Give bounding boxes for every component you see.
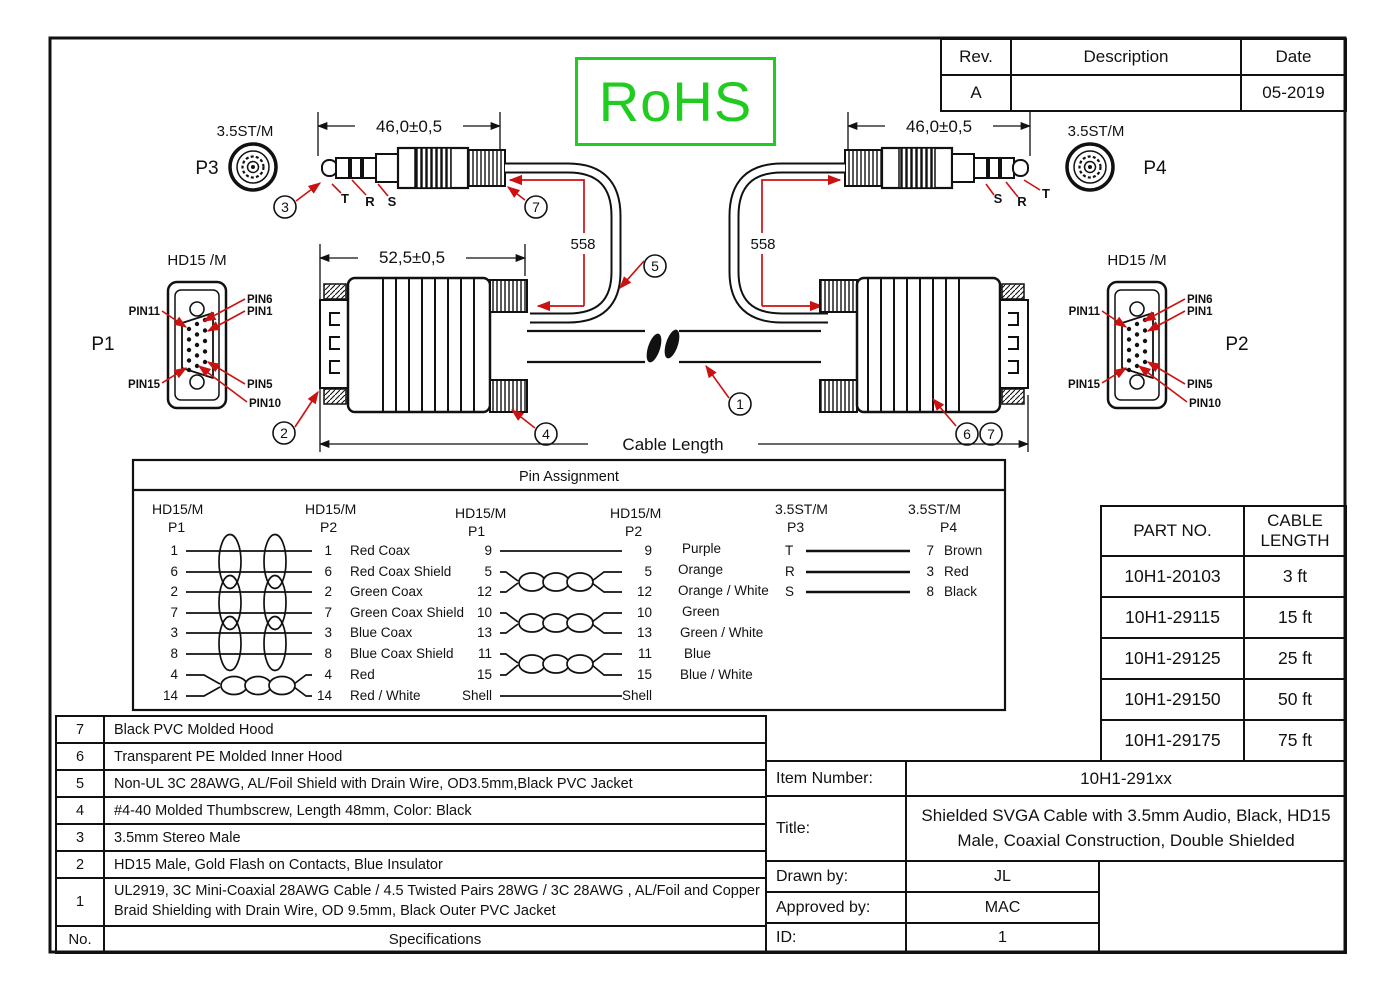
svg-text:Blue: Blue xyxy=(684,646,711,661)
callout-1: 1 xyxy=(736,396,744,412)
callout-7-top: 7 xyxy=(532,199,540,215)
pa-header: P2 xyxy=(625,523,642,539)
svg-text:5: 5 xyxy=(644,564,652,579)
title-value: Shielded SVGA Cable with 3.5mm Audio, Bl… xyxy=(906,796,1346,861)
svg-text:R: R xyxy=(785,564,795,579)
plug-left-pin-r: R xyxy=(365,194,375,209)
pa-header: P4 xyxy=(940,519,957,535)
svg-text:9: 9 xyxy=(644,543,652,558)
spec-text: Black PVC Molded Hood xyxy=(104,716,766,743)
svg-text:S: S xyxy=(785,584,794,599)
svg-text:13: 13 xyxy=(637,625,652,640)
svg-text:2: 2 xyxy=(170,584,178,599)
svg-text:7: 7 xyxy=(926,543,934,558)
length-cell: 75 ft xyxy=(1244,720,1346,761)
svg-text:5: 5 xyxy=(484,564,492,579)
p2-pin10-label: PIN10 xyxy=(1189,398,1221,410)
svg-text:Orange / White: Orange / White xyxy=(678,583,769,598)
left-vga-connector: 52,5±0,5 2 4 xyxy=(273,244,557,452)
p1-name-label: P1 xyxy=(91,334,114,355)
rev-header: Rev. xyxy=(941,39,1011,75)
svg-text:Green / White: Green / White xyxy=(680,625,763,640)
spec-no: 6 xyxy=(56,743,104,770)
svg-text:Red: Red xyxy=(944,564,969,579)
dim-558-left: 558 xyxy=(570,236,595,253)
approved-by-value: MAC xyxy=(906,892,1099,923)
svg-text:15: 15 xyxy=(637,667,652,682)
p2-pin6-label: PIN6 xyxy=(1187,294,1213,306)
dim-vga: 52,5±0,5 xyxy=(379,248,445,267)
svg-text:Red Coax: Red Coax xyxy=(350,543,410,558)
p2-type-label: HD15 /M xyxy=(1107,252,1166,269)
drawn-by-value: JL xyxy=(906,861,1099,892)
svg-text:8: 8 xyxy=(324,646,332,661)
pa-header: P3 xyxy=(787,519,804,535)
p2-name-label: P2 xyxy=(1225,334,1248,355)
callout-7-bottom: 7 xyxy=(987,426,995,442)
svg-text:Blue / White: Blue / White xyxy=(680,667,753,682)
pa-header: P1 xyxy=(468,523,485,539)
part-no-cell: 10H1-20103 xyxy=(1101,556,1244,597)
svg-text:Red Coax Shield: Red Coax Shield xyxy=(350,564,451,579)
length-cell: 3 ft xyxy=(1244,556,1346,597)
approved-by-label: Approved by: xyxy=(766,892,906,923)
length-cell: 15 ft xyxy=(1244,597,1346,638)
rohs-badge: RoHS xyxy=(575,57,776,146)
spec-text: Non-UL 3C 28AWG, AL/Foil Shield with Dra… xyxy=(104,770,766,797)
title-block: Item Number: 10H1-291xx Title: Shielded … xyxy=(765,760,1347,954)
company-logo: 888-212-8295 CableWholesale .com xyxy=(1099,861,1346,953)
dim-right-plug: 46,0±0,5 xyxy=(906,117,972,136)
svg-text:8: 8 xyxy=(170,646,178,661)
length-cell: 25 ft xyxy=(1244,638,1346,679)
spec-sheet-page: { "colors": {"red": "#cc1111", "green": … xyxy=(0,0,1400,990)
p3-type-label: 3.5ST/M xyxy=(217,123,274,140)
svg-text:Purple: Purple xyxy=(682,541,721,556)
plug-right-pin-t: T xyxy=(1042,186,1050,201)
p3-jack-face: 3.5ST/M P3 xyxy=(195,123,276,190)
cable-length-label: Cable Length xyxy=(622,435,723,454)
svg-text:3: 3 xyxy=(926,564,934,579)
svg-text:11: 11 xyxy=(638,646,652,661)
svg-text:4: 4 xyxy=(324,667,332,682)
svg-text:Green: Green xyxy=(682,604,720,619)
part-no-header: PART NO. xyxy=(1101,506,1244,556)
svg-text:15: 15 xyxy=(477,667,492,682)
p1-pin15-label: PIN15 xyxy=(128,379,161,391)
pa-header: 3.5ST/M xyxy=(775,501,828,517)
svg-text:Green Coax: Green Coax xyxy=(350,584,423,599)
svg-text:Shell: Shell xyxy=(622,688,652,703)
spec-no: 3 xyxy=(56,824,104,851)
id-label: ID: xyxy=(766,923,906,953)
p4-type-label: 3.5ST/M xyxy=(1068,123,1125,140)
svg-text:2: 2 xyxy=(324,584,332,599)
revision-table: Rev. Description Date A 05-2019 xyxy=(940,38,1347,112)
dim-558-right: 558 xyxy=(750,236,775,253)
cable-length-header: CABLE LENGTH xyxy=(1244,506,1346,556)
spec-no: 7 xyxy=(56,716,104,743)
svg-text:3: 3 xyxy=(170,625,178,640)
svg-text:3: 3 xyxy=(324,625,332,640)
svg-text:14: 14 xyxy=(317,688,333,703)
pa-header: 3.5ST/M xyxy=(908,501,961,517)
p1-type-label: HD15 /M xyxy=(167,252,226,269)
pin-assignment-title: Pin Assignment xyxy=(519,469,619,485)
svg-text:8: 8 xyxy=(926,584,934,599)
svg-text:1: 1 xyxy=(170,543,178,558)
svg-text:Orange: Orange xyxy=(678,562,723,577)
rev-value: A xyxy=(941,75,1011,111)
spec-footer-label: Specifications xyxy=(104,926,766,953)
item-number-value: 10H1-291xx xyxy=(906,761,1346,796)
svg-text:Black: Black xyxy=(944,584,977,599)
part-no-cell: 10H1-29150 xyxy=(1101,679,1244,720)
audio-cable-loops: 558 558 5 xyxy=(505,168,845,318)
spec-no: 2 xyxy=(56,851,104,878)
part-no-cell: 10H1-29175 xyxy=(1101,720,1244,761)
hd15-face-p2: HD15 /M P2 PIN11 PIN15 PIN6 PIN1 PIN5 PI… xyxy=(1068,252,1249,410)
svg-text:Blue Coax Shield: Blue Coax Shield xyxy=(350,646,454,661)
svg-text:Green Coax Shield: Green Coax Shield xyxy=(350,605,464,620)
right-vga-connector: 6 7 xyxy=(820,278,1028,445)
p4-jack-face: 3.5ST/M P4 xyxy=(1067,123,1167,190)
svg-text:12: 12 xyxy=(477,584,492,599)
spec-text: HD15 Male, Gold Flash on Contacts, Blue … xyxy=(104,851,766,878)
part-no-cell: 10H1-29115 xyxy=(1101,597,1244,638)
svg-text:14: 14 xyxy=(163,688,179,703)
hd15-face-p1: HD15 /M P1 PIN11 PIN15 PIN6 PIN1 PIN5 PI… xyxy=(91,252,281,410)
plug-right-pin-r: R xyxy=(1017,194,1027,209)
svg-text:13: 13 xyxy=(477,625,492,640)
date-header: Date xyxy=(1241,39,1346,75)
spec-no: 4 xyxy=(56,797,104,824)
svg-text:12: 12 xyxy=(637,584,652,599)
part-number-table: PART NO. CABLE LENGTH 10H1-20103 3 ft 10… xyxy=(1100,505,1347,762)
spec-no: 1 xyxy=(56,878,104,926)
title-label: Title: xyxy=(766,796,906,861)
callout-2: 2 xyxy=(280,425,288,441)
pin-assignment-table: Pin Assignment HD15/M P1 HD15/M P2 HD15/… xyxy=(133,460,1005,710)
pa-header: P2 xyxy=(320,519,337,535)
p2-pin11-label: PIN11 xyxy=(1069,306,1101,318)
svg-text:Red / White: Red / White xyxy=(350,688,421,703)
svg-text:T: T xyxy=(785,543,793,558)
p1-pin11-label: PIN11 xyxy=(129,306,161,318)
p2-pin1-label: PIN1 xyxy=(1187,306,1213,318)
description-value xyxy=(1011,75,1241,111)
part-no-cell: 10H1-29125 xyxy=(1101,638,1244,679)
spec-text: 3.5mm Stereo Male xyxy=(104,824,766,851)
plug-right-pin-s: S xyxy=(994,191,1003,206)
svg-text:Shell: Shell xyxy=(462,688,492,703)
spec-text: #4-40 Molded Thumbscrew, Length 48mm, Co… xyxy=(104,797,766,824)
svg-text:6: 6 xyxy=(324,564,332,579)
pa-header: P1 xyxy=(168,519,185,535)
plug-left-pin-t: T xyxy=(341,191,349,206)
rohs-label: RoHS xyxy=(599,69,752,134)
dim-left-plug: 46,0±0,5 xyxy=(376,117,442,136)
svg-text:6: 6 xyxy=(170,564,178,579)
svg-text:1: 1 xyxy=(324,543,332,558)
svg-text:7: 7 xyxy=(324,605,332,620)
pa-header: HD15/M xyxy=(305,501,356,517)
p1-pin5-label: PIN5 xyxy=(247,379,273,391)
p2-pin15-label: PIN15 xyxy=(1068,379,1101,391)
right-audio-plug: 46,0±0,5 S R T xyxy=(845,112,1050,209)
svg-text:10: 10 xyxy=(477,605,492,620)
p3-name-label: P3 xyxy=(195,158,218,179)
p2-pin5-label: PIN5 xyxy=(1187,379,1213,391)
svg-text:Brown: Brown xyxy=(944,543,982,558)
p4-name-label: P4 xyxy=(1143,158,1167,179)
item-number-label: Item Number: xyxy=(766,761,906,796)
p1-pin6-label: PIN6 xyxy=(247,294,273,306)
callout-6: 6 xyxy=(963,426,971,442)
date-value: 05-2019 xyxy=(1241,75,1346,111)
id-value: 1 xyxy=(906,923,1099,953)
svg-text:7: 7 xyxy=(170,605,178,620)
callout-4: 4 xyxy=(542,426,550,442)
p1-pin10-label: PIN10 xyxy=(249,398,281,410)
specifications-table: 7 Black PVC Molded Hood 6 Transparent PE… xyxy=(55,715,767,954)
svg-text:10: 10 xyxy=(637,605,652,620)
svg-text:Red: Red xyxy=(350,667,375,682)
spec-text: UL2919, 3C Mini-Coaxial 28AWG Cable / 4.… xyxy=(104,878,766,926)
callout-3: 3 xyxy=(281,199,289,215)
pa-header: HD15/M xyxy=(455,505,506,521)
length-cell: 50 ft xyxy=(1244,679,1346,720)
spec-text: Transparent PE Molded Inner Hood xyxy=(104,743,766,770)
svg-text:Blue Coax: Blue Coax xyxy=(350,625,413,640)
description-header: Description xyxy=(1011,39,1241,75)
drawn-by-label: Drawn by: xyxy=(766,861,906,892)
pa-header: HD15/M xyxy=(152,501,203,517)
svg-text:11: 11 xyxy=(478,646,492,661)
p1-pin1-label: PIN1 xyxy=(247,306,273,318)
svg-text:9: 9 xyxy=(484,543,492,558)
spec-footer-no: No. xyxy=(56,926,104,953)
plug-left-pin-s: S xyxy=(388,194,397,209)
spec-no: 5 xyxy=(56,770,104,797)
svg-text:4: 4 xyxy=(170,667,178,682)
pa-header: HD15/M xyxy=(610,505,661,521)
callout-5: 5 xyxy=(651,258,659,274)
